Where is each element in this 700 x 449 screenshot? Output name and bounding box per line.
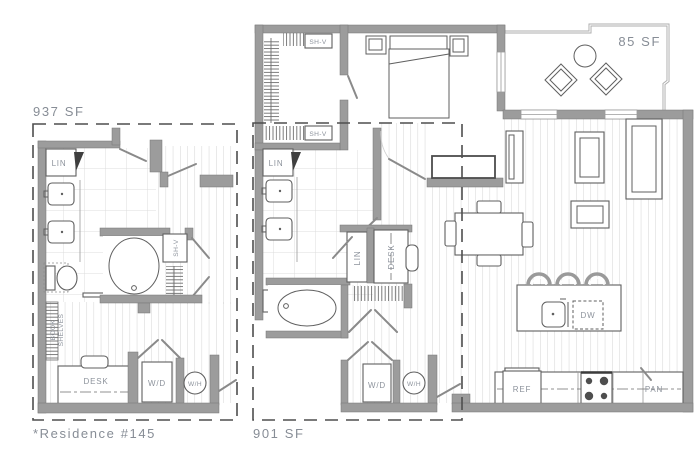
- bedroom-top-wall: [255, 25, 505, 33]
- terrace-chair: [545, 64, 577, 96]
- label-dishwasher: DW: [581, 311, 596, 320]
- stove: [581, 372, 612, 404]
- label-linen-left: LIN: [52, 159, 67, 168]
- desk-chair: [81, 356, 108, 368]
- label-water-heater-left: W/H: [188, 381, 202, 388]
- sofa: [626, 119, 662, 199]
- label-shelf-top: SH-V: [309, 39, 327, 46]
- refrigerator: REF: [503, 368, 541, 404]
- vanity-sink: [44, 183, 74, 205]
- label-linen-nook: LIN: [353, 251, 362, 266]
- nightstand: [450, 36, 468, 56]
- label-left-unit-area: 937 SF: [33, 104, 85, 119]
- kitchen-bottom-wall: [452, 403, 693, 412]
- dining-chair: [477, 201, 501, 213]
- hanger-rod: [264, 40, 279, 122]
- vanity-sink: [262, 180, 292, 202]
- vanity-sink: [262, 218, 292, 240]
- bed: [389, 36, 449, 118]
- coffee-table: [571, 201, 609, 228]
- dining-chair: [445, 221, 456, 246]
- label-refrigerator: REF: [513, 385, 531, 394]
- label-water-heater-middle: W/H: [407, 381, 421, 388]
- bathtub-room: [266, 278, 350, 338]
- label-middle-unit-area: 901 SF: [253, 426, 305, 441]
- terrace-chair: [590, 63, 622, 95]
- walk-in-closet: SH-V SH-V: [255, 33, 340, 150]
- desk-chair: [406, 245, 418, 271]
- label-residence-note: *Residence #145: [33, 426, 156, 441]
- label-shelves: SHELVES: [58, 313, 65, 346]
- bedroom-left-wall: [255, 25, 263, 150]
- desk: [58, 366, 134, 408]
- label-book: BOOK: [50, 319, 57, 340]
- bedroom-bottom-wall: [427, 178, 503, 187]
- vanity-sink: [44, 221, 74, 243]
- label-washer-dryer-middle: W/D: [368, 381, 386, 390]
- hanger-rod: [264, 126, 305, 140]
- closet-door: [348, 76, 357, 98]
- hanger-rod: [283, 33, 305, 46]
- label-desk-middle: DESK: [387, 245, 396, 270]
- label-shelf-middle: SH-V: [309, 131, 327, 138]
- dining-chair: [522, 222, 533, 247]
- armchair: [575, 132, 604, 183]
- label-desk-left: DESK: [84, 377, 109, 386]
- label-pantry: PAN: [645, 385, 663, 394]
- label-terrace-area: 85 SF: [618, 34, 661, 49]
- floor-plan-page: SH-V SH-V: [0, 0, 700, 449]
- right-exterior-wall: [683, 110, 693, 412]
- label-washer-dryer-left: W/D: [148, 379, 166, 388]
- dining-chair: [477, 255, 501, 266]
- tv-unit: [506, 131, 523, 183]
- floor-plan-svg: SH-V SH-V: [0, 0, 700, 449]
- hanger-rod: [354, 286, 404, 301]
- label-linen-middle: LIN: [269, 159, 284, 168]
- label-shelf-left: SH-V: [173, 239, 180, 257]
- nightstand: [366, 36, 386, 54]
- hanger-rod: [166, 266, 183, 296]
- terrace-table: [574, 45, 596, 67]
- tv-console: [432, 156, 495, 178]
